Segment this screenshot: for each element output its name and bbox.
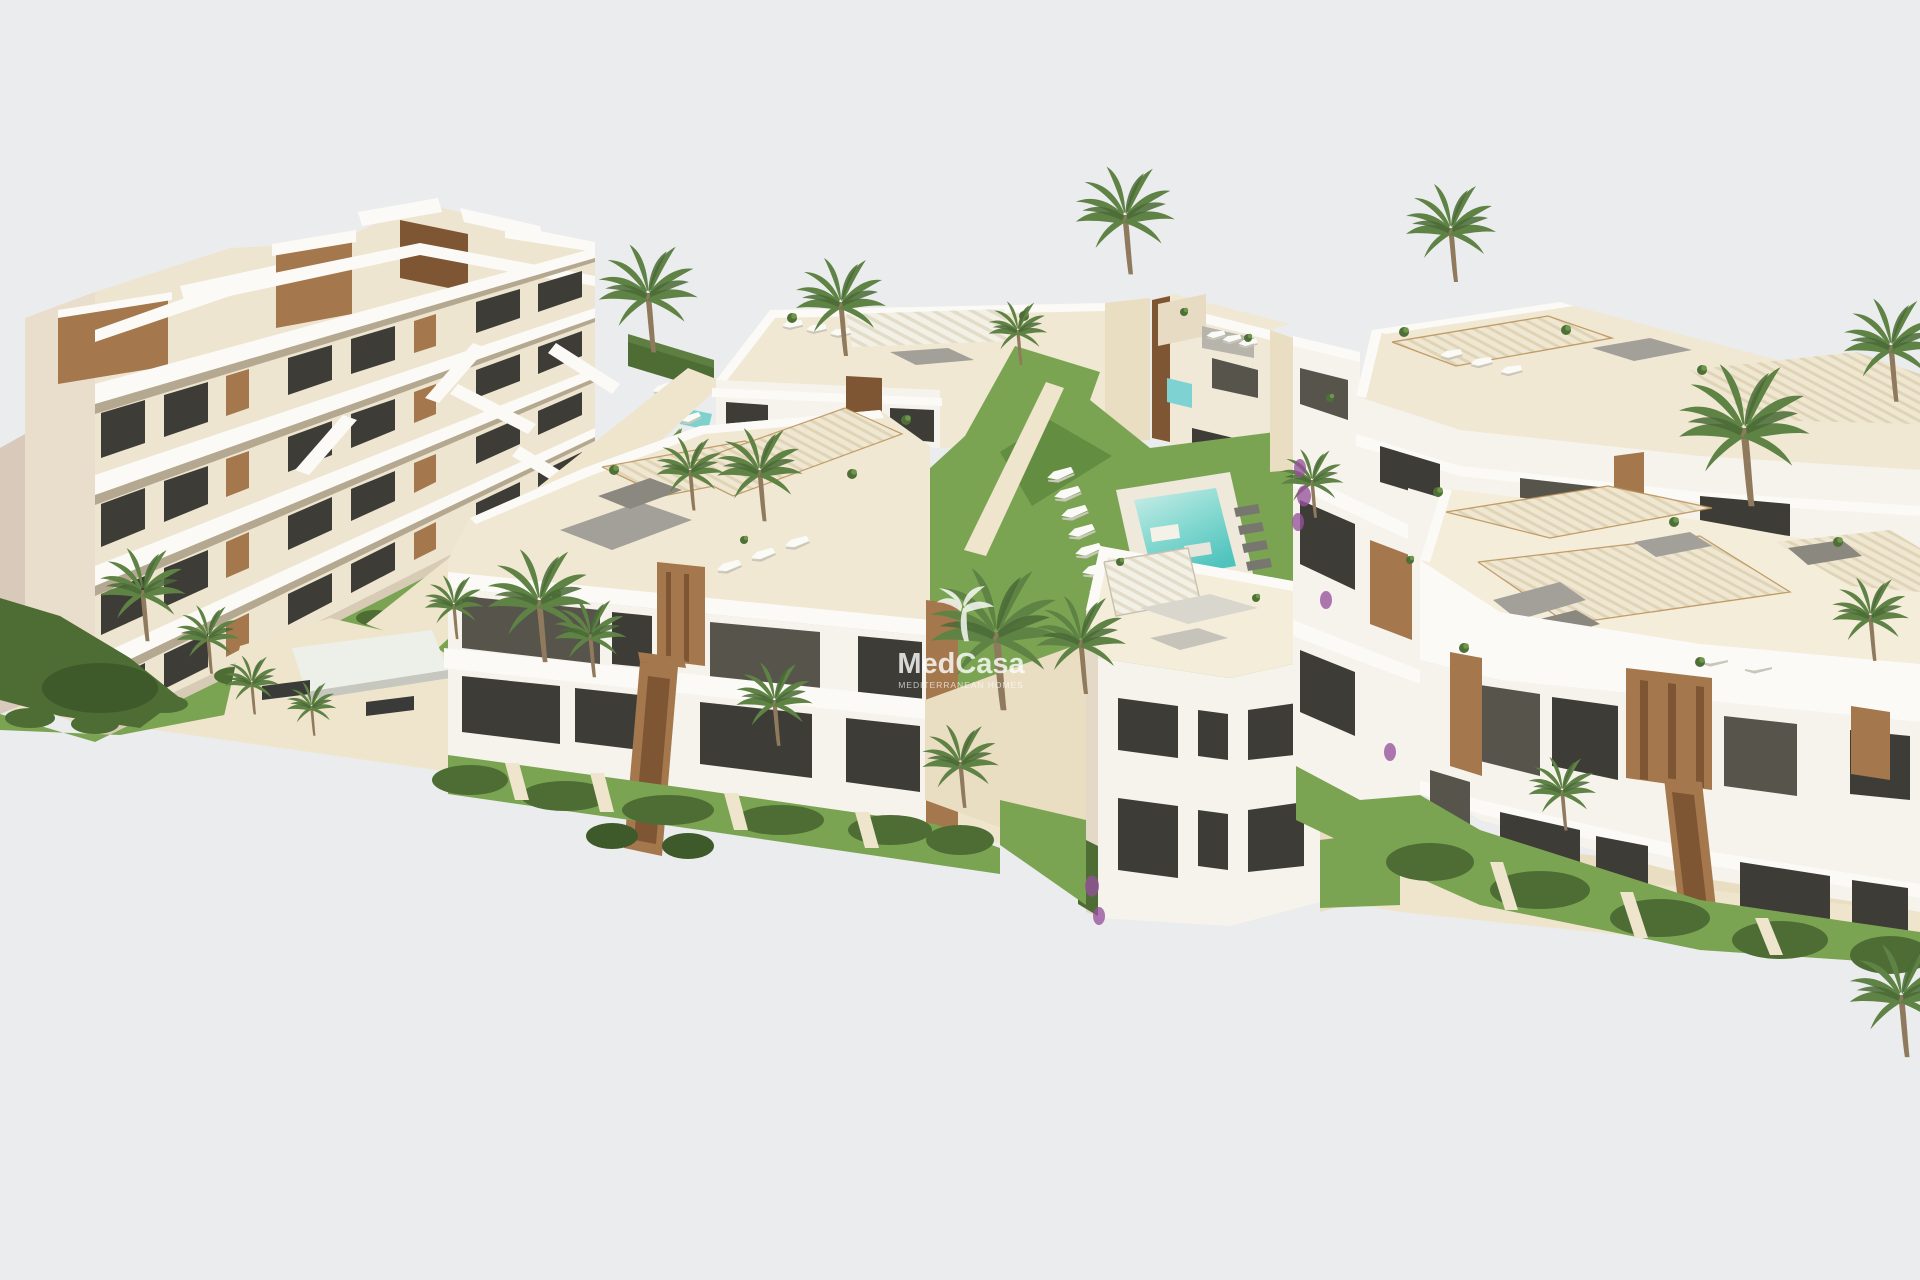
svg-text:MedCasa: MedCasa (897, 648, 1025, 680)
svg-text:MEDITERRANEAN HOMES: MEDITERRANEAN HOMES (898, 680, 1024, 690)
